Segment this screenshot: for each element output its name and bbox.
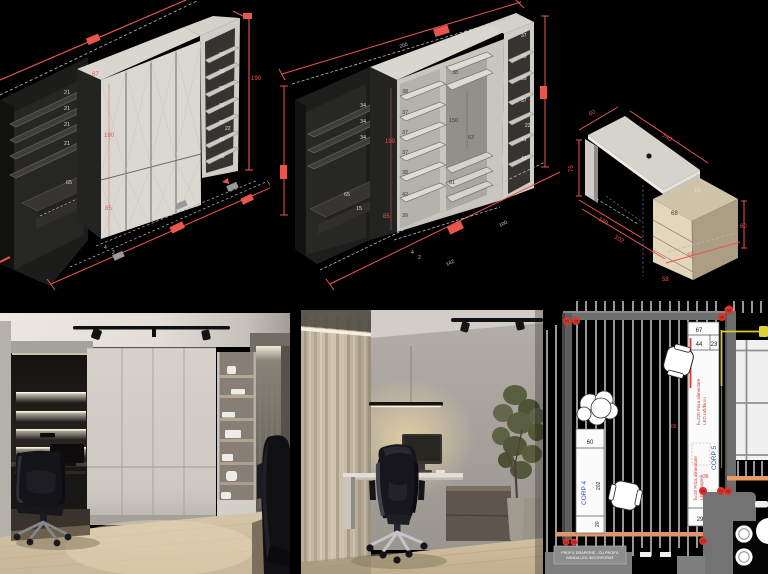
- svg-text:4: 4: [411, 250, 414, 256]
- svg-text:39: 39: [219, 103, 225, 109]
- svg-text:39: 39: [219, 86, 225, 92]
- svg-text:LED raft/birou: LED raft/birou: [702, 397, 707, 425]
- svg-text:67: 67: [696, 328, 703, 334]
- svg-text:21: 21: [64, 106, 70, 112]
- svg-text:37: 37: [402, 150, 408, 156]
- svg-text:15: 15: [356, 206, 362, 212]
- svg-text:28: 28: [701, 489, 706, 494]
- svg-text:43: 43: [521, 156, 527, 162]
- svg-text:39: 39: [402, 213, 408, 219]
- svg-text:34: 34: [360, 135, 366, 141]
- svg-text:150: 150: [449, 118, 458, 124]
- svg-text:06: 06: [727, 308, 732, 313]
- svg-text:68: 68: [671, 211, 678, 217]
- svg-text:21: 21: [565, 319, 570, 324]
- svg-text:25: 25: [574, 319, 579, 324]
- svg-text:h=25 Priza alimentare: h=25 Priza alimentare: [693, 456, 698, 500]
- svg-text:190: 190: [385, 139, 396, 145]
- svg-text:36: 36: [703, 474, 709, 480]
- svg-text:140: 140: [661, 133, 673, 144]
- svg-text:34: 34: [360, 103, 366, 109]
- svg-text:10: 10: [694, 188, 701, 194]
- svg-text:29: 29: [701, 539, 706, 544]
- svg-text:PROFIL DRAPERIE - CU PROFIL: PROFIL DRAPERIE - CU PROFIL: [561, 551, 619, 555]
- svg-text:39: 39: [219, 69, 225, 75]
- svg-text:CORP 4: CORP 4: [581, 481, 588, 505]
- svg-text:20: 20: [595, 521, 601, 527]
- svg-text:41: 41: [521, 137, 527, 143]
- svg-text:23: 23: [711, 342, 718, 348]
- svg-text:2: 2: [112, 250, 115, 256]
- svg-text:60: 60: [588, 109, 597, 118]
- svg-text:29: 29: [697, 517, 704, 523]
- svg-text:41: 41: [219, 137, 225, 143]
- svg-text:22: 22: [225, 126, 231, 132]
- svg-text:21: 21: [64, 141, 70, 147]
- svg-text:38: 38: [402, 89, 408, 95]
- svg-text:44: 44: [696, 342, 703, 348]
- svg-text:202: 202: [596, 481, 602, 490]
- svg-text:37: 37: [521, 98, 527, 104]
- svg-text:26: 26: [572, 540, 577, 545]
- svg-text:88: 88: [671, 424, 677, 430]
- svg-text:63: 63: [468, 135, 474, 141]
- svg-text:65: 65: [344, 192, 350, 198]
- svg-text:190: 190: [104, 133, 115, 139]
- svg-text:22: 22: [525, 123, 531, 129]
- svg-text:21: 21: [64, 122, 70, 128]
- svg-text:58: 58: [662, 277, 669, 283]
- svg-text:4: 4: [104, 245, 107, 251]
- svg-text:37: 37: [521, 33, 527, 39]
- svg-text:27: 27: [719, 489, 724, 494]
- svg-text:65: 65: [66, 180, 72, 186]
- svg-text:37: 37: [219, 52, 225, 58]
- svg-text:42: 42: [402, 192, 408, 198]
- svg-text:h=220 Priza alimentare: h=220 Priza alimentare: [696, 378, 701, 425]
- svg-text:CORP 5: CORP 5: [711, 446, 718, 470]
- svg-text:BANDA LED INCORPORAT: BANDA LED INCORPORAT: [566, 556, 614, 560]
- svg-text:21: 21: [64, 90, 70, 96]
- svg-text:34: 34: [360, 119, 366, 125]
- svg-text:100: 100: [498, 220, 508, 229]
- svg-text:60: 60: [740, 224, 747, 230]
- svg-text:39: 39: [521, 76, 527, 82]
- svg-text:67: 67: [92, 72, 99, 78]
- svg-text:08: 08: [726, 489, 731, 494]
- svg-text:85: 85: [383, 214, 390, 220]
- svg-text:81: 81: [449, 180, 455, 186]
- svg-text:2: 2: [418, 255, 421, 261]
- svg-text:37: 37: [219, 120, 225, 126]
- svg-text:85: 85: [105, 206, 112, 212]
- svg-text:60: 60: [587, 440, 594, 446]
- svg-text:38: 38: [402, 170, 408, 176]
- svg-text:39: 39: [521, 54, 527, 60]
- svg-text:37: 37: [402, 110, 408, 116]
- svg-text:21: 21: [564, 540, 569, 545]
- svg-text:142: 142: [445, 259, 455, 268]
- svg-text:102: 102: [613, 235, 625, 246]
- svg-text:26: 26: [720, 315, 725, 320]
- svg-text:190: 190: [251, 76, 262, 82]
- svg-text:38: 38: [452, 70, 458, 76]
- svg-text:43: 43: [219, 154, 225, 160]
- svg-text:37: 37: [402, 130, 408, 136]
- svg-text:130: 130: [597, 217, 609, 228]
- svg-text:75: 75: [569, 165, 575, 172]
